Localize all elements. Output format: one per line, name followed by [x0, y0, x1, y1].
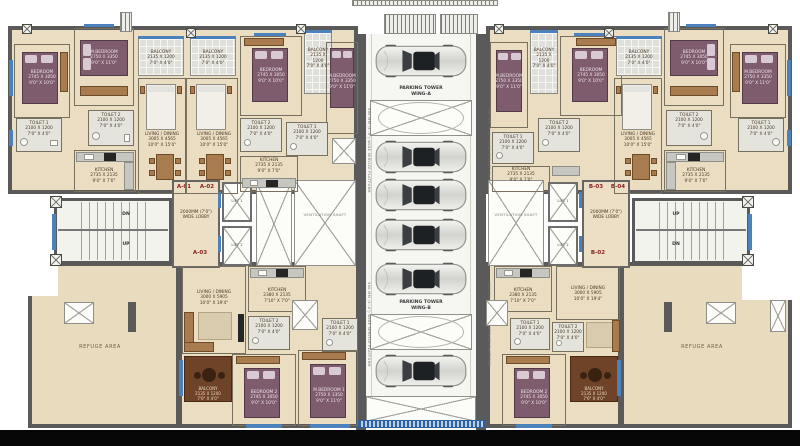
wardrobe [236, 356, 280, 364]
pillow [329, 367, 341, 375]
pillow [198, 86, 224, 92]
shaft-grille [120, 12, 132, 32]
sink [258, 270, 267, 276]
stair-landing [730, 202, 746, 260]
car-icon [374, 218, 468, 252]
toilet-1-label: TOILET 1 2100 X 1200 7'0" X 4'0" [492, 135, 534, 149]
lift-2-label: LIFT 2 [224, 242, 250, 248]
stove [520, 269, 532, 277]
kitchen-counter [552, 166, 580, 176]
pillow [148, 86, 174, 92]
chair [225, 170, 231, 176]
basin-fixture [124, 134, 130, 142]
window [310, 424, 350, 428]
chair [149, 170, 155, 176]
chair [625, 170, 631, 176]
window [179, 360, 183, 396]
balcony-label: BALCONY 2135 X 1200 7'0" X 4'0" [186, 386, 230, 398]
bedroom-2-label: BEDROOM 2 2745 X 3050 9'0" X 10'0" [236, 390, 292, 406]
duct-shaft [486, 300, 508, 326]
dining-table [206, 154, 224, 180]
lift-2-label: LIFT 2 [550, 242, 576, 248]
pillow [745, 55, 757, 63]
wardrobe [506, 356, 550, 364]
column [664, 302, 672, 332]
column-marker [742, 196, 754, 208]
turntable-a [378, 102, 464, 134]
unit-label-b03: B-03 [586, 184, 606, 192]
balcony-table [588, 368, 602, 382]
pillow [533, 371, 545, 379]
balcony-label: BALCONY 2135 X 1200 7'0" X 4'0" [140, 50, 182, 64]
wardrobe [244, 38, 284, 46]
living-dining-label: LIVING / DINING 3005 X 4565 10'0" X 15'0… [616, 132, 660, 148]
lobby-label: 2000MM (7'0") WIDE LOBBY [174, 210, 218, 224]
balcony-chair [194, 372, 201, 379]
chair [149, 158, 155, 164]
stair-landing [636, 202, 652, 260]
car-icon [374, 354, 468, 388]
window [254, 33, 286, 36]
wc-fixture [496, 152, 503, 159]
pillow [25, 55, 37, 63]
balcony-label: BALCONY 2135 X 1200 7'0" X 4'0" [572, 386, 616, 398]
column-marker [50, 196, 62, 208]
toilet-2-label: TOILET 2 2100 X 1200 7'0" X 4'0" [552, 325, 584, 339]
chair [175, 170, 181, 176]
column-marker [742, 254, 754, 266]
window [516, 424, 552, 428]
kitchen-label: KITCHEN 2735 X 2135 9'0" X 7'0" [668, 168, 724, 182]
vent-box [770, 300, 786, 332]
duct-shaft [292, 300, 318, 330]
wc-fixture [244, 139, 251, 146]
window [9, 60, 13, 96]
window [574, 33, 606, 36]
balcony-label: BALCONY 2135 X 1200 7'0" X 4'0" [531, 48, 557, 62]
car-icon [374, 262, 468, 296]
refuge-right-notch [742, 260, 794, 300]
toilet-1-label: TOILET 1 2100 X 1200 7'0" X 4'0" [286, 125, 328, 139]
duct-shaft [332, 138, 356, 164]
service-platform-label: 900 MM (3'-0") WIDE SERVICE PLATFORM [487, 282, 491, 382]
car-icon [374, 140, 468, 174]
window [84, 24, 114, 27]
wardrobe [732, 52, 740, 92]
ventilation-shaft-right [488, 180, 544, 266]
column-marker [296, 24, 306, 34]
bedroom-label: BEDROOM 2745 X 3050 9'0" X 10'0" [668, 50, 720, 66]
floor-plan: PARKING TOWER WING-A PARKING TOWER WING-… [0, 0, 800, 446]
stair-landing [58, 202, 74, 260]
service-platform-label: 900 MM (3'-0") WIDE SERVICE PLATFORM [367, 108, 371, 208]
lift-1-label: LIFT 1 [224, 198, 250, 204]
sink [676, 154, 686, 160]
balcony-railing [304, 30, 332, 33]
parking-tower-wing-b-label: PARKING TOWER WING-B [374, 300, 468, 313]
side-table [190, 86, 195, 94]
side-table [227, 86, 232, 94]
platform-edge-left [371, 34, 372, 424]
mbedroom-label: M.BEDROOM 2750 X 3350 9'0" X 11'0" [490, 74, 528, 90]
balcony-chair [218, 372, 225, 379]
side-table [140, 86, 145, 94]
wardrobe [670, 86, 718, 96]
column-marker [50, 254, 62, 266]
stair-up-label: UP [664, 212, 688, 220]
balcony-chair [604, 372, 611, 379]
column-marker [604, 28, 614, 38]
bottom-black-band [0, 430, 800, 446]
stove [276, 269, 288, 277]
wardrobe [576, 38, 616, 46]
platform-edge-right [470, 34, 471, 424]
pillow [498, 53, 508, 60]
stair-dn-label: DN [114, 212, 138, 220]
pillow [575, 51, 587, 59]
column-marker [22, 24, 32, 34]
balcony-railing [190, 36, 236, 39]
ventilation-shaft-left [294, 180, 356, 266]
pillow [761, 55, 773, 63]
lift-door [218, 192, 221, 208]
toilet-1-label: TOILET 1 2100 X 1200 7'0" X 4'0" [322, 321, 358, 335]
sink [504, 270, 513, 276]
sofa [612, 320, 620, 352]
living-dining-label: LIVING / DINING 3000 X 5905 10'0" X 19'4… [184, 290, 244, 306]
chair [199, 170, 205, 176]
window [617, 360, 621, 396]
toilet-1-label: TOILET 1 2100 X 1200 7'0" X 4'0" [510, 321, 550, 335]
column-marker [186, 28, 196, 38]
pillow [255, 51, 267, 59]
window [686, 24, 716, 27]
balcony-chair [580, 372, 587, 379]
stair-window [52, 214, 56, 250]
living-dining-label: LIVING / DINING 3000 X 5905 10'0" X 19'4… [558, 286, 618, 302]
unit-label-b02: B-02 [586, 250, 610, 258]
balcony-railing [530, 30, 558, 33]
chair [651, 170, 657, 176]
mbedroom-1-label: M.BEDROOM 1 2750 X 3350 9'0" X 11'0" [302, 388, 356, 404]
car-icon [374, 178, 468, 212]
bedroom-label: BEDROOM 2745 X 3050 9'0" X 10'0" [244, 68, 298, 84]
column-marker [494, 24, 504, 34]
column [128, 302, 136, 332]
kitchen-label: KITCHEN 2735 X 2135 9'0" X 7'0" [76, 168, 132, 182]
vent-box [706, 302, 736, 324]
wc-fixture [20, 138, 28, 146]
toilet-1-label: TOILET 1 2100 X 1200 7'0" X 4'0" [16, 121, 62, 135]
chair [199, 158, 205, 164]
parking-tower-wing-a-label: PARKING TOWER WING-A [374, 86, 468, 99]
wc-fixture [556, 340, 562, 346]
stair-divider [636, 229, 746, 231]
dining-table [632, 154, 650, 180]
balcony-railing [616, 36, 662, 39]
window [246, 424, 282, 428]
pillow [624, 86, 650, 92]
pillow [332, 51, 341, 58]
shaft-grille [668, 12, 680, 32]
chair [175, 158, 181, 164]
mbedroom-label: M.BEDROOM 2750 X 3350 9'0" X 11'0" [78, 50, 130, 66]
vent-box [64, 302, 94, 324]
wc-fixture [542, 139, 549, 146]
wc-fixture [326, 339, 333, 346]
balcony-label: BALCONY 2135 X 1200 7'0" X 4'0" [618, 50, 660, 64]
wardrobe [302, 352, 346, 360]
dining-table [156, 154, 174, 180]
sink [84, 154, 94, 160]
basin-fixture [50, 140, 58, 146]
pillow [591, 51, 603, 59]
balcony-railing [138, 36, 184, 39]
pillow [41, 55, 53, 63]
pillow [343, 51, 352, 58]
stair-divider [58, 229, 168, 231]
side-table [616, 86, 621, 94]
top-hatch-band [352, 0, 498, 6]
louver-grille-right [440, 14, 478, 34]
living-dining-label: LIVING / DINING 3005 X 4565 10'0" X 15'0… [192, 132, 236, 148]
lift-1-label: LIFT 1 [550, 198, 576, 204]
bedroom-label: BEDROOM 2745 X 3050 9'0" X 10'0" [564, 68, 618, 84]
sofa [184, 342, 214, 352]
pillow [511, 53, 521, 60]
stair-dn-label: DN [664, 242, 688, 250]
car-icon [374, 44, 468, 78]
entrance-grille [358, 420, 486, 428]
mbedroom-label: M.BEDROOM 2750 X 3350 9'0" X 11'0" [326, 74, 358, 90]
tv-unit [238, 314, 244, 342]
stair-up-label: UP [114, 242, 138, 250]
refuge-area-label: REFUGE AREA [672, 344, 732, 354]
wc-fixture [700, 132, 708, 140]
window [787, 60, 791, 96]
ventilation-shaft-label: VENTILATION SHAFT [490, 212, 542, 220]
kitchen-label: KITCHEN 2735 X 2135 9'0" X 7'0" [494, 167, 548, 181]
toilet-2-label: TOILET 2 2100 X 1200 7'0" X 4'0" [248, 319, 290, 333]
toilet-2-label: TOILET 2 2100 X 1200 7'0" X 4'0" [240, 121, 282, 135]
wardrobe [80, 86, 128, 96]
side-table [653, 86, 658, 94]
stove [104, 153, 116, 161]
louver-grille-left [384, 14, 436, 34]
lobby-label: 2000MM (7'0") WIDE LOBBY [584, 210, 628, 224]
pillow [247, 371, 259, 379]
living-dining-label: LIVING / DINING 3005 X 4565 10'0" X 15'0… [140, 132, 184, 148]
service-platform-label: 900 MM (3'-0") WIDE SERVICE PLATFORM [367, 282, 371, 382]
wc-fixture [514, 338, 521, 345]
pillow [263, 371, 275, 379]
tower-base-platform [366, 396, 476, 422]
wc-fixture [772, 138, 780, 146]
window [787, 130, 791, 146]
chair [225, 158, 231, 164]
wc-fixture [252, 337, 259, 344]
toilet-2-label: TOILET 2 2100 X 1200 7'0" X 4'0" [88, 113, 134, 127]
side-table [177, 86, 182, 94]
pillow [271, 51, 283, 59]
stove [266, 180, 278, 187]
window [9, 130, 13, 146]
toilet-2-label: TOILET 2 2100 X 1200 7'0" X 4'0" [666, 113, 712, 127]
chair [625, 158, 631, 164]
sink [250, 180, 258, 186]
stair-window [748, 214, 752, 250]
rug [198, 312, 232, 340]
kitchen-label: KITCHEN 2735 X 2135 9'0" X 7'0" [242, 158, 296, 172]
bedroom-2-label: BEDROOM 2 2745 X 3050 9'0" X 10'0" [506, 390, 562, 406]
wardrobe [60, 52, 68, 92]
refuge-area-label: REFUGE AREA [70, 344, 130, 354]
tower-wall-right [476, 34, 486, 430]
balcony-table [202, 368, 216, 382]
stair-landing [152, 202, 168, 260]
toilet-1-label: TOILET 1 2100 X 1200 7'0" X 4'0" [738, 121, 784, 135]
stove [688, 153, 700, 161]
duct-shaft-left [256, 182, 292, 266]
chair [651, 158, 657, 164]
pillow [313, 367, 325, 375]
balcony-label: BALCONY 2135 X 1200 7'0" X 4'0" [192, 50, 234, 64]
wc-fixture [92, 132, 100, 140]
ventilation-shaft-label: VENTILATION SHAFT [296, 212, 354, 220]
toilet-2-label: TOILET 2 2100 X 1200 7'0" X 4'0" [538, 121, 580, 135]
unit-label-a03: A-03 [188, 250, 212, 258]
column-marker [768, 24, 778, 34]
pillow [517, 371, 529, 379]
wc-fixture [290, 143, 297, 150]
lift-door [218, 236, 221, 252]
turntable-b [378, 316, 464, 348]
